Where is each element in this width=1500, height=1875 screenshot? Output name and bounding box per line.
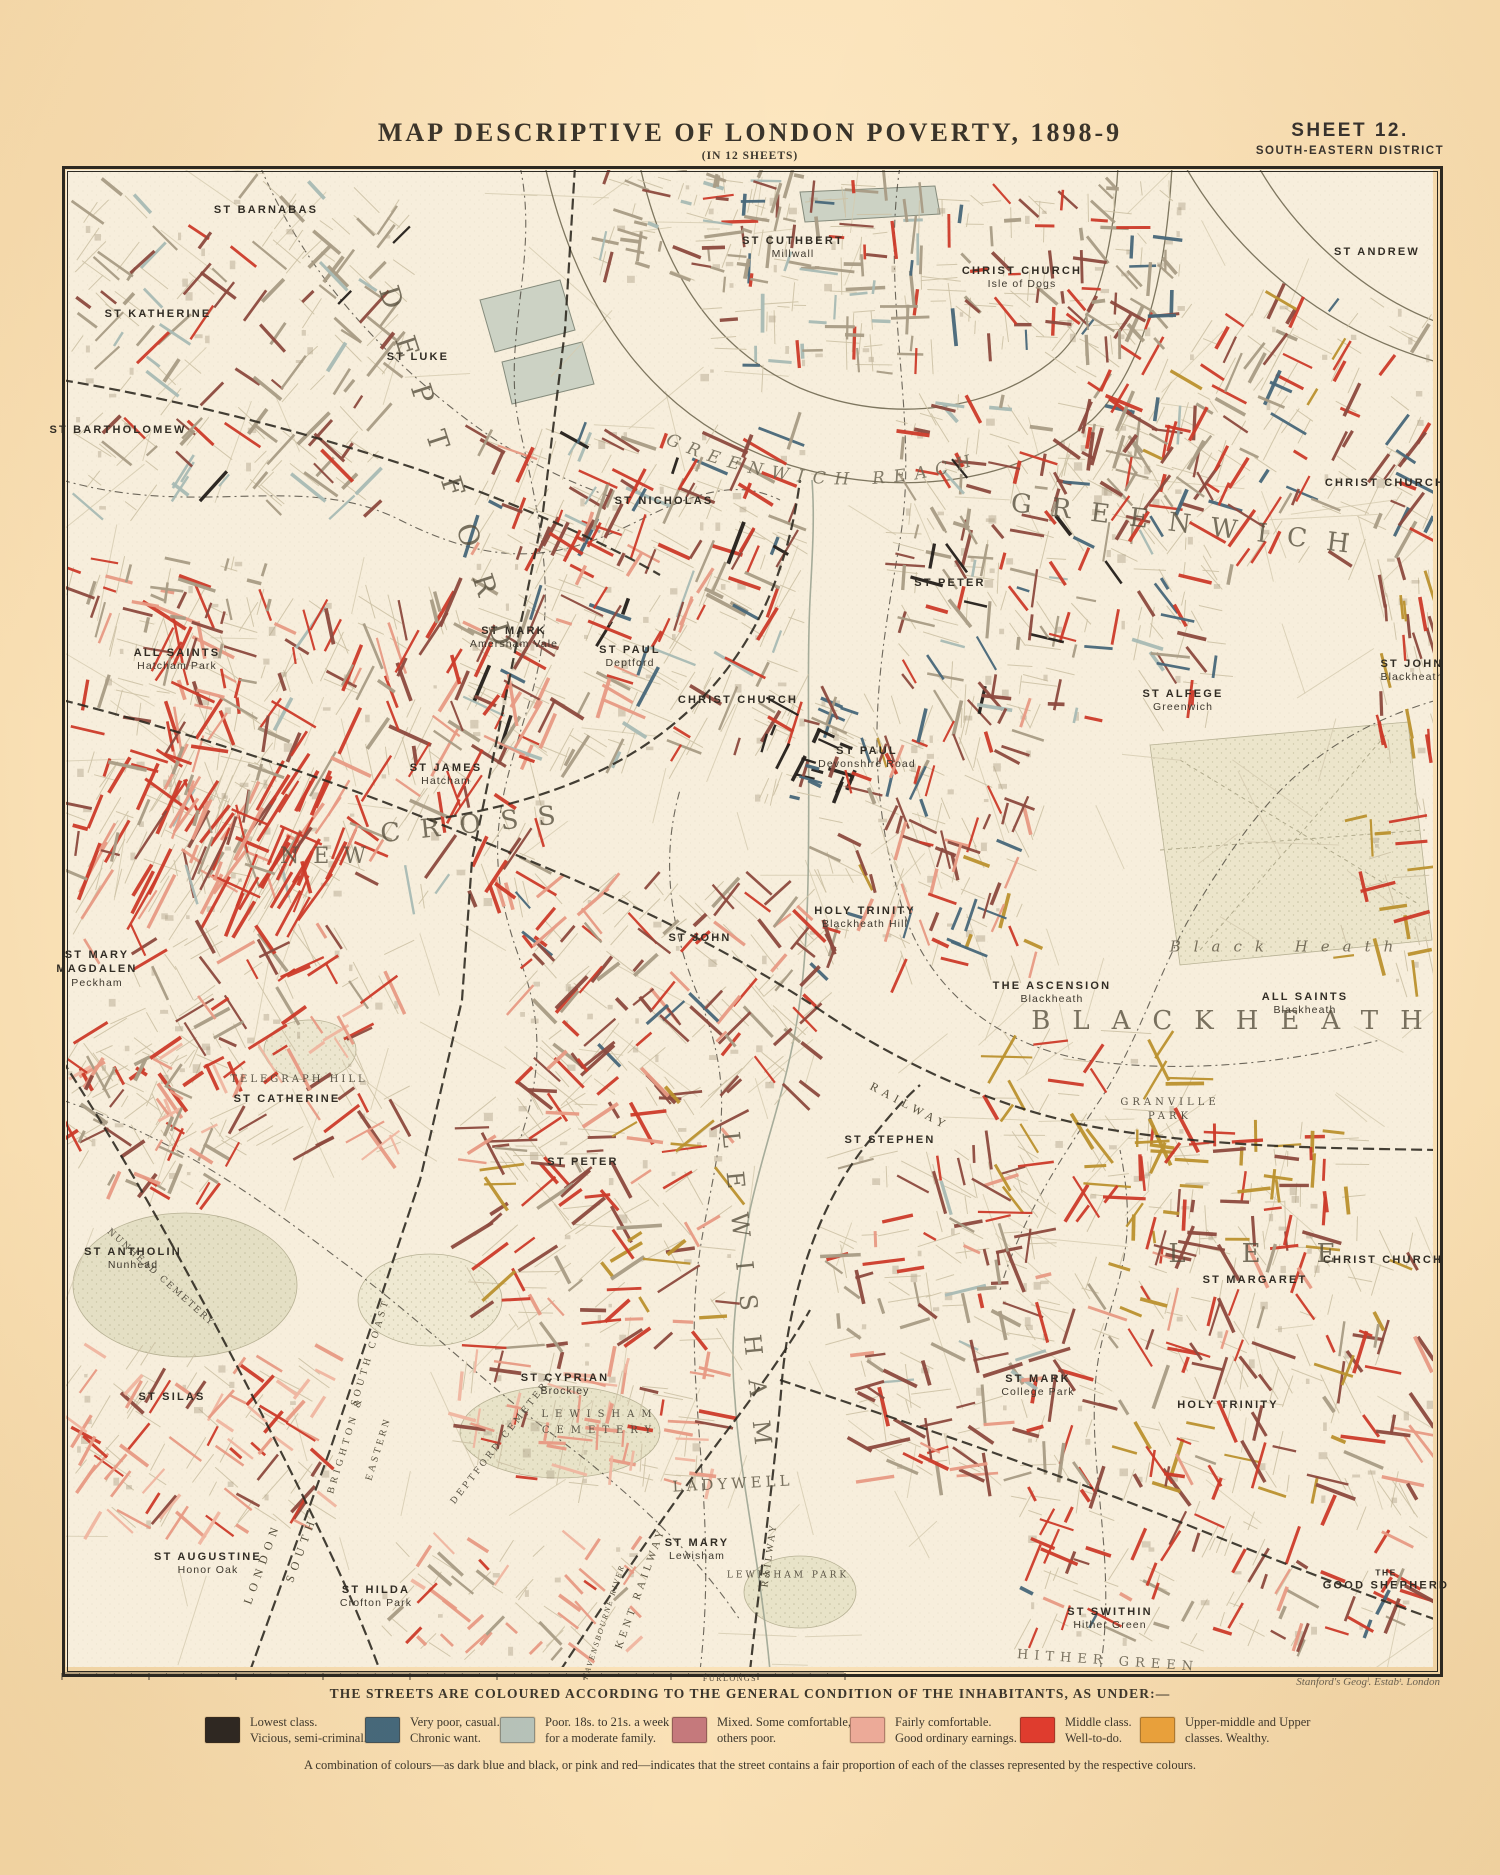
parish-label: ST JOHNBlackheath xyxy=(1380,657,1443,685)
parish-label: ST PETER xyxy=(914,576,985,590)
railway-label: KENT RAILWAY xyxy=(614,1526,668,1651)
district-label: CROSS xyxy=(379,801,577,847)
parish-label: ST MARGARET xyxy=(1203,1273,1308,1287)
parish-label: ST AUGUSTINEHonor Oak xyxy=(154,1550,262,1578)
parish-label: ST SILAS xyxy=(138,1390,205,1404)
parish-label: CHRIST CHURCH xyxy=(1325,476,1445,490)
district-label: GREENWICH xyxy=(1009,490,1370,560)
parish-label: HOLY TRINITYBlackheath Hill xyxy=(814,904,916,932)
parish-label: HOLY TRINITY xyxy=(1177,1398,1279,1412)
parish-label: ST HILDACrofton Park xyxy=(340,1583,412,1611)
parish-label: CHRIST CHURCH xyxy=(678,693,798,707)
parish-label: ST MARKCollege Park xyxy=(1001,1372,1074,1400)
district-label: LADYWELL xyxy=(672,1473,794,1494)
district-label: HITHER GREEN xyxy=(1017,1648,1200,1674)
district-label: LEE xyxy=(1168,1241,1391,1267)
parish-label: THE ASCENSIONBlackheath xyxy=(993,979,1112,1007)
publisher-attribution: Stanford's Geogˡ. Estabᵗ. London xyxy=(1230,1676,1440,1688)
railway-label: BRIGHTON & xyxy=(326,1395,365,1495)
railway-label: RAVENSBOURNE RIVER xyxy=(582,1564,627,1681)
parish-label: ST MARYMAGDALENPeckham xyxy=(56,948,137,990)
feature-label: CEMETERY xyxy=(542,1426,658,1436)
parish-label: ST JAMESHatcham xyxy=(410,761,483,789)
parish-label: ST NICHOLAS xyxy=(615,494,714,508)
feature-label: LEWISHAM xyxy=(541,1410,658,1420)
district-label: NEW xyxy=(280,846,380,868)
map-labels-layer: ST BARNABASST KATHERINEST BARTHOLOMEWST … xyxy=(0,0,1500,1875)
parish-label: THEGOOD SHEPHERD xyxy=(1323,1567,1449,1592)
district-label: BLACKHEATH xyxy=(1031,1008,1445,1034)
parish-label: ST ANDREW xyxy=(1334,245,1420,259)
parish-label: ST JOHN xyxy=(668,931,731,945)
parish-label: ST SWITHINHither Green xyxy=(1067,1605,1153,1633)
district-label: LEWISHAM xyxy=(718,1130,777,1470)
parish-label: ST PAULDeptford xyxy=(599,643,661,671)
district-label: Black Heath xyxy=(1170,940,1407,955)
parish-label: ST MARYLewisham xyxy=(665,1536,730,1564)
feature-label: TELEGRAPH HILL xyxy=(230,1075,367,1085)
feature-label: DEPTFORD CEMETERY xyxy=(450,1374,557,1507)
parish-label: ST CATHERINE xyxy=(234,1092,341,1106)
parish-label: ST ALFEGEGreenwich xyxy=(1142,687,1223,715)
parish-label: ST BARTHOLOMEW xyxy=(49,423,186,437)
railway-label: RAILWAY xyxy=(868,1080,952,1132)
district-label: DEPTFORD xyxy=(374,282,526,677)
parish-label: ST PETER xyxy=(547,1155,618,1169)
parish-label: ST STEPHEN xyxy=(844,1133,935,1147)
parish-label: ALL SAINTSHatcham Park xyxy=(134,646,221,674)
parish-label: ST PAULDevonshire Road xyxy=(818,744,916,772)
scale-bar-label: FURLONGS xyxy=(630,1674,830,1683)
parish-label: ST CUTHBERTMillwall xyxy=(742,234,844,262)
parish-label: ST KATHERINE xyxy=(105,307,212,321)
feature-label: GRANVILLE xyxy=(1120,1098,1219,1108)
parish-label: ST BARNABAS xyxy=(214,203,318,217)
railway-label: EASTERN xyxy=(365,1416,394,1482)
parish-label: CHRIST CHURCHIsle of Dogs xyxy=(962,264,1082,292)
railway-label: SOUTH COAST xyxy=(350,1297,392,1408)
feature-label: PARK xyxy=(1148,1112,1192,1122)
feature-label: NUNHEAD CEMETERY xyxy=(105,1228,216,1329)
booth-poverty-map-sheet: MAP DESCRIPTIVE OF LONDON POVERTY, 1898-… xyxy=(0,0,1500,1875)
feature-label: LEWISHAM PARK xyxy=(727,1572,849,1581)
railway-label: SOUTH xyxy=(283,1514,318,1584)
